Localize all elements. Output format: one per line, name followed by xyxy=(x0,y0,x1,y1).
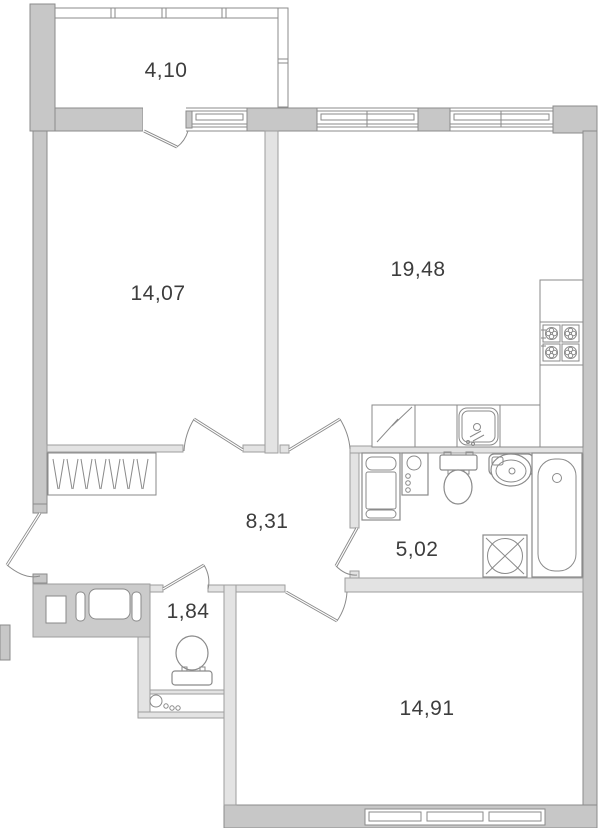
label-balcony: 4,10 xyxy=(145,59,188,82)
wall-stub-neighbor xyxy=(0,625,10,660)
label-bedroom-2: 14,91 xyxy=(399,697,454,720)
glazing-top xyxy=(55,8,288,18)
wall-balcony-left xyxy=(30,4,55,131)
entrance-jamb-bottom xyxy=(33,574,47,583)
washing-machine-icon xyxy=(483,535,527,577)
floor-plan: 4,10 14,07 19,48 8,31 5,02 1,84 14,91 xyxy=(0,0,600,828)
label-bedroom: 14,07 xyxy=(130,282,185,305)
window-living-1 xyxy=(317,111,418,127)
wall-bedroom-living xyxy=(265,131,278,453)
glazing-right xyxy=(278,8,288,107)
cabinet-icon xyxy=(362,453,400,520)
wall-pier-a xyxy=(55,108,143,131)
wall-hall-bottom-1 xyxy=(150,585,163,592)
entrance-door xyxy=(7,513,40,577)
wall-bath-bottom xyxy=(345,578,583,592)
entrance-jamb-top xyxy=(33,504,47,513)
wall-right xyxy=(583,131,597,828)
vent-duct-4 xyxy=(132,592,141,621)
label-wc: 1,84 xyxy=(167,600,210,623)
window-bedroom-2 xyxy=(365,809,545,825)
bathtub-icon xyxy=(532,453,582,577)
wall-bath-left-top xyxy=(350,453,359,528)
wall-hall-bottom-2 xyxy=(208,585,285,592)
balcony-door-opening xyxy=(143,107,186,132)
label-bathroom: 5,02 xyxy=(396,538,439,561)
wall-jamb-nub xyxy=(280,445,289,453)
vent-duct-2 xyxy=(76,592,85,621)
wall-pier-c xyxy=(418,108,450,131)
wall-wc-divider xyxy=(150,690,224,694)
wall-nub xyxy=(186,111,192,128)
wall-wc-right-long xyxy=(224,585,236,805)
window-living-2 xyxy=(450,111,553,127)
riser-icon xyxy=(402,453,428,495)
wall-wc-bottom xyxy=(138,712,224,718)
room-kitchen-living xyxy=(278,131,583,447)
wall-pier-corner xyxy=(553,106,597,133)
wall-hall-top-mid xyxy=(243,445,265,452)
vent-duct-1 xyxy=(46,596,66,623)
label-kitchen-living: 19,48 xyxy=(390,258,445,281)
vent-shaft-icon xyxy=(33,584,150,637)
counter-right-run xyxy=(540,280,583,447)
wall-pier-b xyxy=(247,108,317,131)
wardrobe-icon xyxy=(48,453,156,495)
riser-wc-icon xyxy=(150,695,180,710)
window-bedroom xyxy=(192,111,247,127)
floor-plan-page: 4,10 14,07 19,48 8,31 5,02 1,84 14,91 xyxy=(0,0,600,828)
kitchen-sink-icon xyxy=(459,408,498,446)
vent-duct-3 xyxy=(89,589,130,619)
wall-hall-top-left xyxy=(47,445,183,452)
label-hallway: 8,31 xyxy=(246,510,289,533)
wall-left xyxy=(33,131,47,505)
